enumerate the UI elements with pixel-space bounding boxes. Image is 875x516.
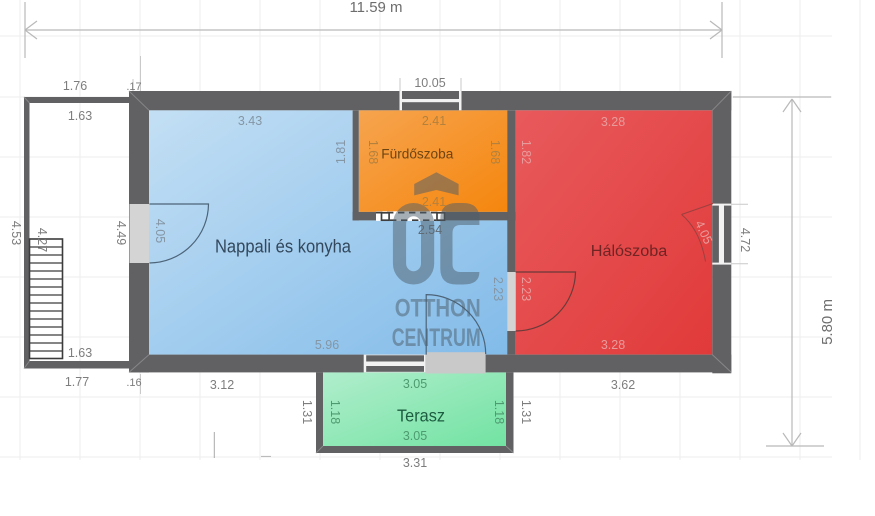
svg-text:3.12: 3.12 xyxy=(210,378,234,392)
svg-text:4.27: 4.27 xyxy=(35,228,49,252)
svg-text:11.59 m: 11.59 m xyxy=(349,0,402,16)
svg-text:2.41: 2.41 xyxy=(422,114,446,128)
svg-text:2.54: 2.54 xyxy=(418,223,442,237)
svg-text:1.18: 1.18 xyxy=(492,400,506,424)
svg-text:1.82: 1.82 xyxy=(519,140,533,164)
svg-text:4.05: 4.05 xyxy=(153,219,167,243)
svg-text:10.05: 10.05 xyxy=(414,76,445,90)
svg-text:.17: .17 xyxy=(126,81,141,93)
svg-text:.16: .16 xyxy=(126,377,141,389)
svg-text:1.18: 1.18 xyxy=(328,400,342,424)
svg-text:2.23: 2.23 xyxy=(519,277,533,301)
svg-text:Nappali és konyha: Nappali és konyha xyxy=(215,237,352,257)
svg-text:1.81: 1.81 xyxy=(334,140,348,164)
svg-text:5.80 m: 5.80 m xyxy=(819,299,836,345)
svg-text:Terasz: Terasz xyxy=(397,405,445,425)
svg-text:CENTRUM: CENTRUM xyxy=(392,324,481,352)
svg-text:1.68: 1.68 xyxy=(488,140,502,164)
svg-text:3.31: 3.31 xyxy=(403,456,427,470)
svg-text:4.53: 4.53 xyxy=(9,221,23,245)
svg-text:1.63: 1.63 xyxy=(68,109,92,123)
svg-text:4.72: 4.72 xyxy=(738,228,752,252)
svg-text:1.77: 1.77 xyxy=(65,375,89,389)
svg-text:5.96: 5.96 xyxy=(315,338,339,352)
svg-text:1.31: 1.31 xyxy=(519,400,533,424)
svg-text:2.41: 2.41 xyxy=(422,195,446,209)
svg-text:3.28: 3.28 xyxy=(601,115,625,129)
svg-text:3.28: 3.28 xyxy=(601,338,625,352)
svg-text:3.05: 3.05 xyxy=(403,377,427,391)
svg-text:3.43: 3.43 xyxy=(238,114,262,128)
svg-text:4.49: 4.49 xyxy=(114,221,128,245)
svg-text:3.05: 3.05 xyxy=(403,429,427,443)
svg-text:Fürdőszoba: Fürdőszoba xyxy=(381,145,453,161)
svg-text:1.63: 1.63 xyxy=(68,346,92,360)
svg-text:3.62: 3.62 xyxy=(611,378,635,392)
svg-text:1.68: 1.68 xyxy=(366,140,380,164)
svg-text:Hálószoba: Hálószoba xyxy=(591,243,668,260)
svg-text:1.76: 1.76 xyxy=(63,79,87,93)
svg-text:OTTHON: OTTHON xyxy=(395,295,481,323)
svg-text:2.23: 2.23 xyxy=(491,277,505,301)
svg-text:1.31: 1.31 xyxy=(300,400,314,424)
